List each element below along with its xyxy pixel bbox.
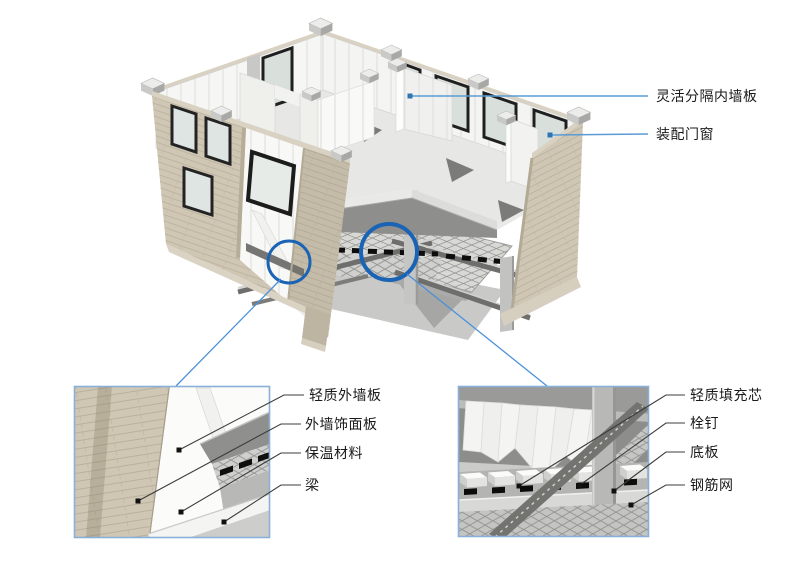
main-illustration [0, 0, 800, 565]
label-rebar-mesh: 钢筋网 [690, 478, 734, 493]
detail-panel-right [458, 386, 649, 541]
window [206, 118, 230, 164]
label-base-plate: 底板 [690, 445, 719, 460]
label-flexible-partition-wall: 灵活分隔内墙板 [656, 89, 758, 104]
label-lightweight-filler-core: 轻质填充芯 [690, 388, 763, 403]
detail-panel-left [74, 386, 271, 560]
label-insulation-material: 保温材料 [305, 446, 363, 461]
window [172, 106, 196, 152]
window [184, 168, 212, 215]
connector-line-left [176, 279, 281, 386]
label-stud: 栓钉 [690, 416, 719, 431]
diagram-canvas: 灵活分隔内墙板 装配门窗 轻质外墙板 外墙饰面板 保温材料 梁 轻质填充芯 栓钉… [0, 0, 800, 565]
partition-end-panel [396, 68, 404, 132]
label-exterior-finish-panel: 外墙饰面板 [305, 417, 378, 432]
label-beam: 梁 [305, 478, 320, 493]
leader-line [552, 134, 648, 135]
label-lightweight-exterior-panel: 轻质外墙板 [309, 388, 382, 403]
label-assembled-doors-windows: 装配门窗 [656, 127, 714, 142]
